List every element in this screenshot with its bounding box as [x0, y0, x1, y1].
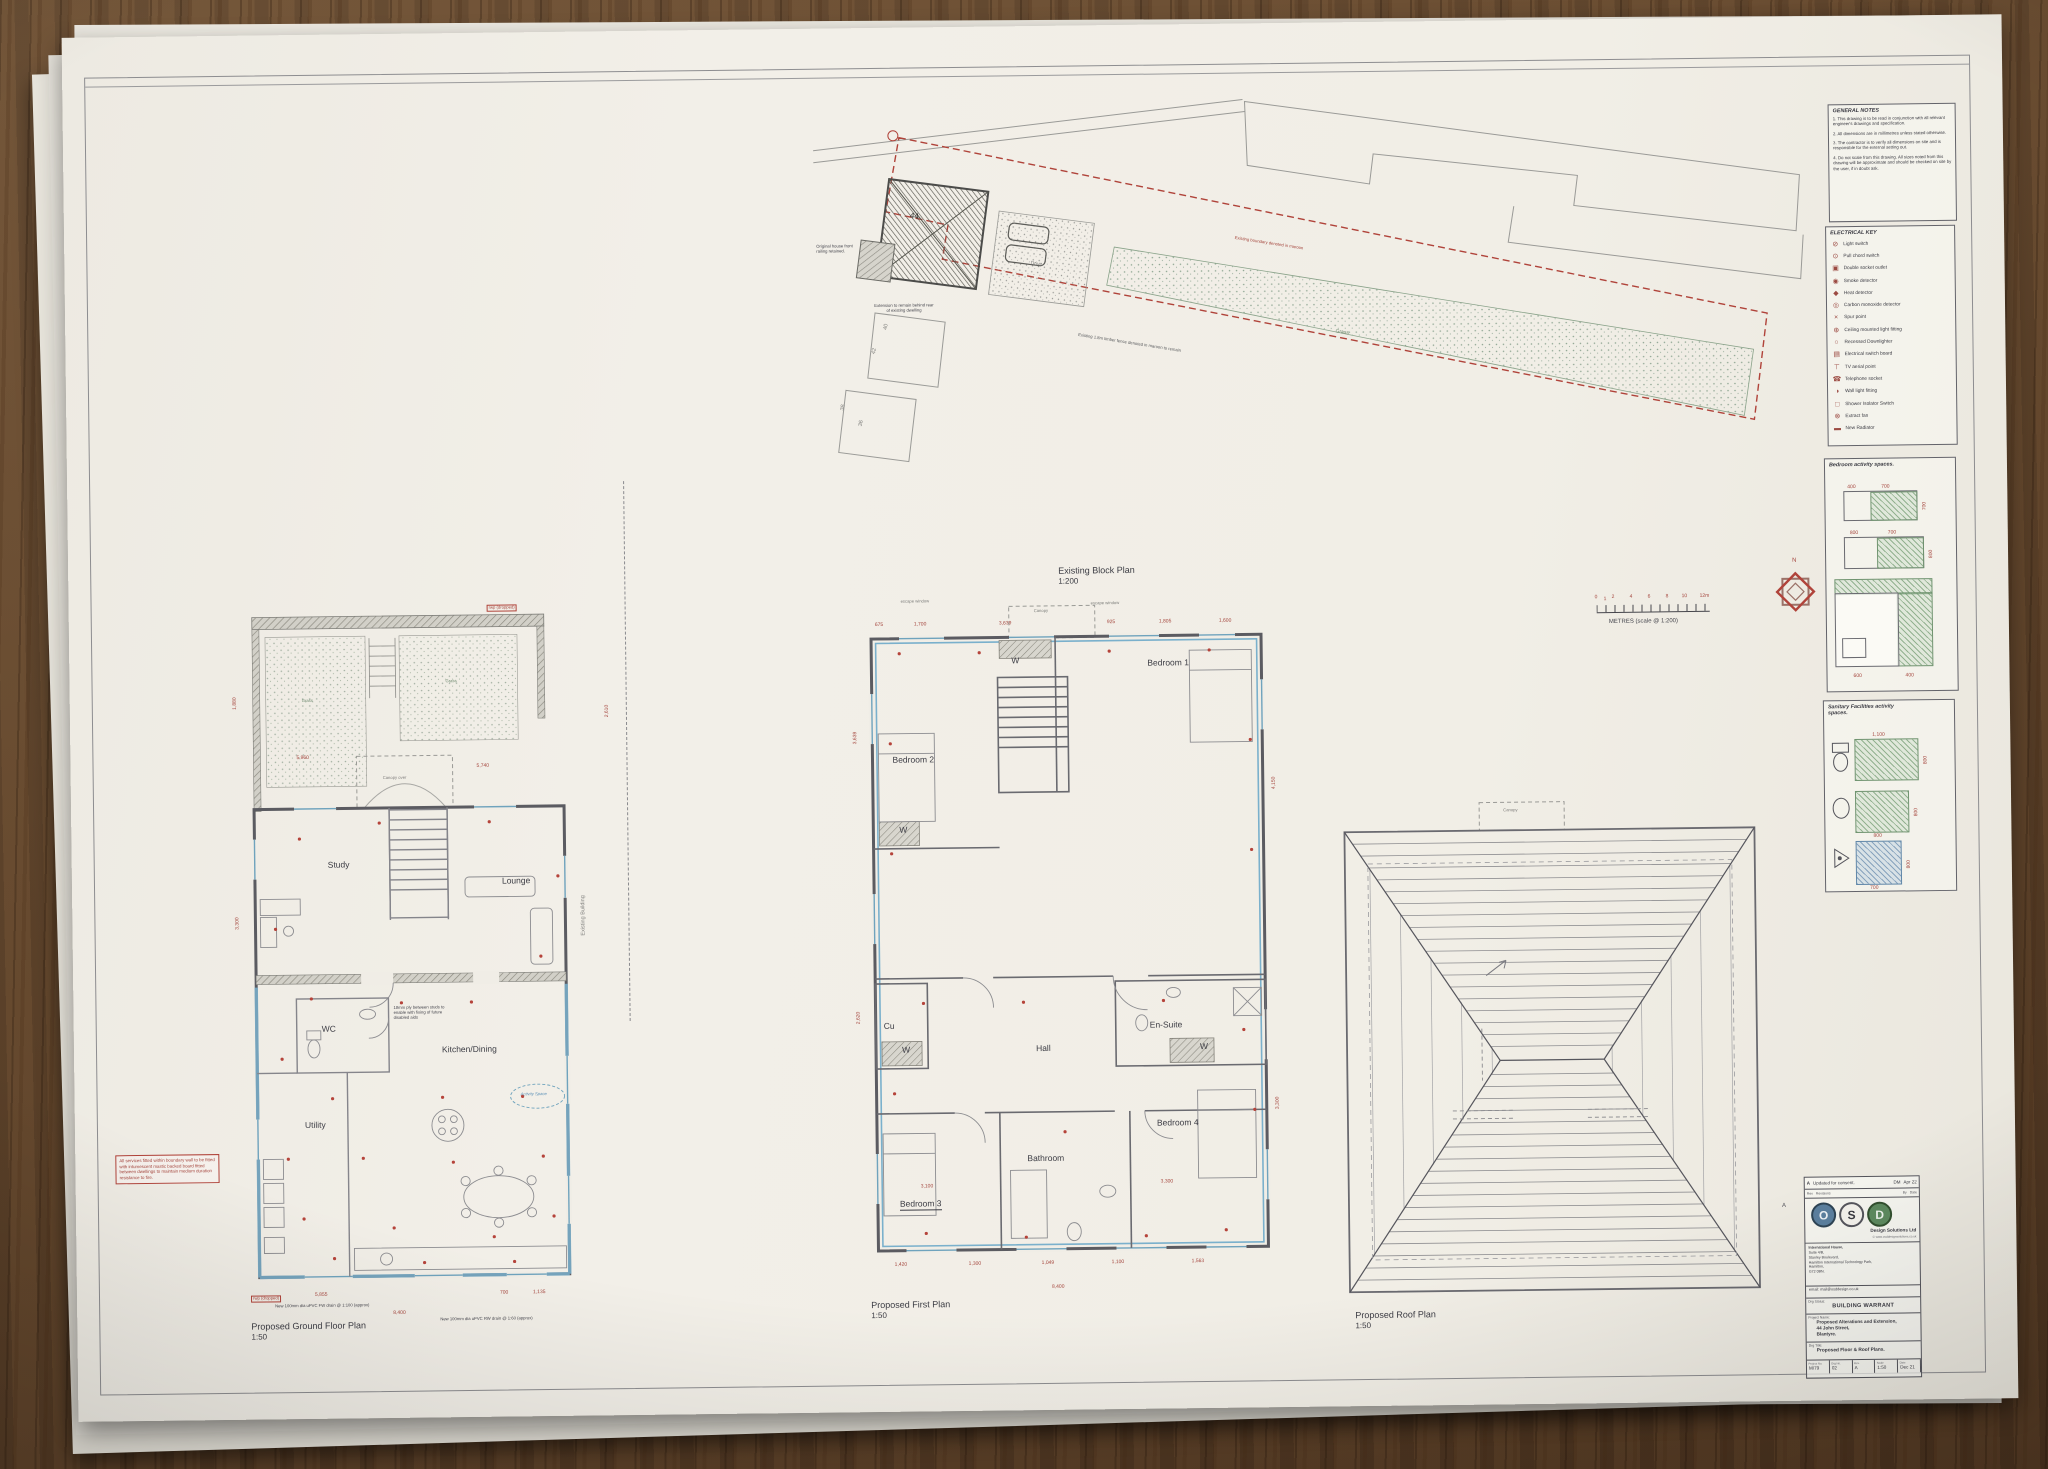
plot-number: 42 — [871, 348, 878, 355]
first-floor-dimensions: 6751,7003,6399251,8051,6003,6392,6204,15… — [858, 589, 1297, 1319]
company-name: Design Solutions Ltd — [1870, 1227, 1916, 1233]
smoke-icon: ◉ — [1832, 277, 1840, 285]
electrical-key-label: Smoke detector — [1844, 278, 1878, 283]
bed-activity-diagram — [1834, 578, 1935, 671]
dimension-label: 2,620 — [856, 1012, 862, 1025]
first-floor-title: Proposed First Plan 1:50 — [871, 1299, 950, 1321]
ceiling-light-icon: ⊕ — [1832, 326, 1840, 334]
roof-plan: Canopy Proposed Roof Plan 1:50 — [1329, 777, 1776, 1347]
title-block-field: Drg No. 02 — [1830, 1360, 1853, 1373]
dimension-label: 1,100 — [1112, 1259, 1125, 1265]
electrical-key-label: Ceiling mounted light fitting — [1844, 327, 1902, 333]
dimension-label: 700 — [1881, 484, 1889, 490]
dimension-label: 1,049 — [1042, 1260, 1055, 1266]
plot-number: 38 — [840, 404, 847, 411]
revision-letter: A — [1807, 1181, 1810, 1186]
dimension-label: 925 — [1107, 619, 1115, 625]
services-red-note: All services fitted within boundary wall… — [115, 1154, 219, 1184]
dimension-label: 5,960 — [296, 755, 309, 761]
extension-note: Extension to remain behind rear of exist… — [873, 303, 935, 313]
project-line: Blantyre. — [1817, 1331, 1921, 1338]
dimension-label: 800 — [1913, 808, 1919, 816]
logo-circle-o: O — [1811, 1202, 1836, 1227]
general-note: 2. All dimensions are in millimetres unl… — [1833, 130, 1951, 137]
dimension-label: 700 — [1870, 885, 1878, 891]
general-notes-panel: GENERAL NOTES 1. This drawing is to be r… — [1828, 103, 1957, 223]
dimension-label: 800 — [1906, 860, 1912, 868]
dimension-label: 8 — [1666, 593, 1669, 599]
drg-title-row: Drg Title: Proposed Floor & Roof Plans. — [1807, 1341, 1921, 1360]
electrical-key-panel: ELECTRICAL KEY ⊘ Light switch ⊙ Pull cho… — [1825, 225, 1958, 447]
address-line: G72 0BN. — [1809, 1269, 1917, 1275]
status-row: Drg Status: BUILDING WARRANT — [1806, 1297, 1920, 1314]
dimension-label: 700 — [1921, 502, 1927, 510]
electrical-key-list: ⊘ Light switch ⊙ Pull chord switch ▣ Dou… — [1826, 237, 1956, 435]
dimension-label: 1,100 — [1872, 732, 1885, 738]
general-notes-list: 1. This drawing is to be read in conjunc… — [1829, 115, 1956, 171]
title-block-field: Rev. A — [1852, 1360, 1875, 1373]
wc-icon — [1830, 741, 1850, 773]
by-header: By — [1903, 1190, 1907, 1194]
dimension-label: 800 — [1928, 550, 1934, 558]
phone-icon: ☎ — [1833, 376, 1841, 384]
first-floor-plan: escape window escape window Canopy Bedro… — [858, 589, 1297, 1319]
drg-title-label: Drg Title: — [1809, 1343, 1823, 1347]
bedroom-activity-panel: Bedroom activity spaces. 400 700 700 800… — [1824, 457, 1959, 693]
dimension-label: 800 — [1850, 530, 1858, 536]
logo-circle-d: D — [1867, 1202, 1892, 1227]
dimension-label: 400 — [1847, 484, 1855, 490]
wc-activity-zone — [1854, 738, 1919, 781]
dimension-label: 1,880 — [232, 697, 238, 710]
block-plan-drawing — [812, 87, 1808, 604]
dimension-label: 2 — [1612, 594, 1615, 600]
plot-number-44: 44 — [909, 211, 919, 221]
activity-zone — [1897, 592, 1934, 666]
dimension-label: 1,300 — [969, 1261, 982, 1267]
general-note: 1. This drawing is to be read in conjunc… — [1833, 115, 1951, 127]
roof-plan-title: Proposed Roof Plan 1:50 — [1355, 1309, 1436, 1331]
dimension-label: 10 — [1682, 593, 1688, 599]
drg-title-value: Proposed Floor & Roof Plans. — [1817, 1347, 1921, 1353]
activity-zone — [1877, 537, 1924, 569]
compass-star-icon — [1768, 564, 1823, 619]
block-plan-title: Existing Block Plan 1:200 — [1058, 565, 1135, 587]
shower-activity-zone — [1856, 840, 1903, 885]
dimension-label: 3,300 — [1161, 1178, 1174, 1184]
dimension-label: 675 — [875, 622, 883, 628]
plot-number: 40 — [883, 323, 890, 330]
dimension-label: 1,420 — [895, 1262, 908, 1268]
pillow — [1842, 638, 1866, 658]
shower-icon — [1832, 845, 1852, 871]
basin-activity-zone — [1855, 790, 1910, 833]
title-block-field: Date Dec 21 — [1898, 1359, 1921, 1372]
company-url: © www.osddesignsolutions.co.uk — [1873, 1234, 1917, 1239]
scale-bar-caption: METRES (scale @ 1:200) — [1609, 618, 1678, 626]
dimension-label: 1,135 — [533, 1289, 546, 1295]
general-notes-title: GENERAL NOTES — [1833, 107, 1951, 114]
project-label: Project Name: — [1808, 1315, 1830, 1319]
co-icon: ◎ — [1832, 302, 1840, 310]
railing-note: Original house front railing retained. — [816, 244, 860, 254]
electrical-key-label: Shower Isolator Switch — [1845, 401, 1894, 407]
canopy-label: Canopy — [1503, 808, 1517, 813]
fan-icon: ⊗ — [1833, 412, 1841, 420]
tv-icon: ⊤ — [1833, 363, 1841, 371]
electrical-key-label: New Radiator — [1845, 426, 1874, 431]
dimension-label: 4,150 — [1271, 777, 1277, 790]
dimension-label: 3,639 — [852, 732, 858, 745]
drawing-sheet: 44 Drive Grass Existing boundary denoted… — [62, 14, 2019, 1422]
project-row: Project Name: Proposed Alterations and E… — [1806, 1313, 1920, 1342]
dimension-label: 3,100 — [921, 1183, 934, 1189]
dimension-label: 800 — [1923, 756, 1929, 764]
revision-by: DM — [1893, 1180, 1900, 1185]
dimension-label: 400 — [1906, 672, 1914, 678]
basin-icon — [1831, 795, 1851, 821]
switch-icon: ⊘ — [1831, 240, 1839, 248]
plot-number: 36 — [858, 420, 865, 427]
electrical-key-label: Heat detector — [1844, 291, 1873, 296]
logo-circle-s: S — [1839, 1202, 1864, 1227]
pull-chord-icon: ⊙ — [1831, 253, 1839, 261]
bed-outline — [1835, 593, 1900, 668]
electrical-key-label: Telephone socket — [1845, 377, 1882, 382]
dimension-label: 5,855 — [315, 1292, 328, 1298]
roof-plan-drawing — [1329, 777, 1776, 1347]
dimension-label: 3,300 — [234, 917, 240, 930]
ground-dimensions: 5,9605,7401,8803,3002,6108,4005,8557001,… — [235, 454, 696, 1359]
electrical-key-label: Recessed Downlighter — [1844, 340, 1892, 346]
electrical-key-label: Wall light fitting — [1845, 389, 1877, 394]
logo-row: O S D Design Solutions Ltd © www.osddesi… — [1805, 1197, 1920, 1243]
existing-block-plan: 44 Drive Grass Existing boundary denoted… — [812, 87, 1808, 604]
radiator-icon: ▬ — [1833, 425, 1841, 433]
dimension-label: 5,740 — [477, 763, 490, 769]
dimension-label: 700 — [500, 1290, 508, 1296]
dimension-label: 700 — [1888, 530, 1896, 536]
electrical-key-label: Carbon monoxide detector — [1844, 303, 1901, 309]
electrical-key-title: ELECTRICAL KEY — [1830, 229, 1950, 236]
revision-marker: A — [1782, 1203, 1786, 1210]
status-label: Drg Status: — [1808, 1299, 1825, 1303]
revision-desc: Updated for consent. — [1813, 1180, 1855, 1186]
activity-zone — [1870, 491, 1917, 521]
wall-light-icon: ◑ — [1833, 388, 1841, 396]
dimension-label: 8,400 — [393, 1310, 406, 1316]
dimension-label: 800 — [1873, 833, 1881, 839]
scale-bar-group: 0124681012m METRES (scale @ 1:200) — [1596, 589, 1797, 646]
north-label: N — [1792, 558, 1796, 565]
revision-date: Apr 22 — [1903, 1179, 1916, 1184]
shower-switch-icon: □ — [1833, 400, 1841, 408]
dimension-label: 600 — [1854, 673, 1862, 679]
board-icon: ▤ — [1833, 351, 1841, 359]
dimension-label: 8,400 — [1052, 1284, 1065, 1290]
bedroom-space-diagram — [1844, 536, 1924, 569]
general-note: 4. Do not scale from this drawing. All s… — [1833, 154, 1951, 172]
dimension-label: 6 — [1648, 594, 1651, 600]
electrical-key-label: Electrical switch board — [1845, 352, 1893, 358]
heat-icon: ◆ — [1832, 290, 1840, 298]
electrical-key-row: ▬ New Radiator — [1828, 421, 1956, 435]
dimension-label: 1,600 — [1219, 618, 1232, 624]
address-block: International House, Suite 4/B, Stanley … — [1805, 1242, 1920, 1286]
electrical-key-label: Pull chord switch — [1843, 254, 1879, 259]
dimension-label: 1,805 — [1159, 618, 1172, 624]
bedroom-space-diagram — [1843, 490, 1917, 521]
dimension-label: 1,563 — [1192, 1258, 1205, 1264]
dimension-label: 0 — [1595, 594, 1598, 600]
dimension-label: 3,300 — [1275, 1097, 1281, 1110]
title-block-field: Scale 1:50 — [1875, 1360, 1898, 1373]
fields-row: Project No. M/79 Drg No. 02 Rev. A Scale… — [1807, 1359, 1921, 1373]
electrical-key-label: Double socket outlet — [1844, 266, 1888, 272]
dimension-label: 2,610 — [604, 705, 610, 718]
bedroom-activity-title: Bedroom activity spaces. — [1829, 461, 1899, 468]
north-arrow: N — [1768, 564, 1829, 631]
revisions-header: Revisions — [1816, 1191, 1831, 1195]
electrical-key-label: Light switch — [1843, 241, 1868, 246]
ground-floor-title: Proposed Ground Floor Plan 1:50 — [251, 1320, 366, 1343]
dimension-label: 3,639 — [999, 620, 1012, 626]
dimension-label: 1,700 — [914, 621, 927, 627]
sanitary-title: Sanitary Facilities activity spaces. — [1828, 703, 1908, 716]
ground-floor-plan: Grass Grass Canopy over Study Lounge WC … — [235, 454, 696, 1359]
electrical-key-label: Extract fan — [1845, 414, 1868, 419]
downlight-icon: ○ — [1832, 339, 1840, 347]
title-block-field: Project No. M/79 — [1807, 1360, 1830, 1373]
dimension-label: 1 — [1604, 596, 1607, 602]
scale-bar: 0124681012m — [1597, 604, 1710, 613]
general-note: 3. The contractor is to verify all dimen… — [1833, 139, 1951, 151]
electrical-key-label: TV aerial point — [1845, 364, 1876, 369]
date-header: Date — [1910, 1190, 1917, 1194]
electrical-key-label: Spur point — [1844, 315, 1866, 320]
sanitary-facilities-panel: Sanitary Facilities activity spaces. 1,1… — [1823, 699, 1957, 893]
dimension-label: 4 — [1630, 594, 1633, 600]
dimension-label: 12m — [1700, 593, 1710, 599]
socket-icon: ▣ — [1832, 265, 1840, 273]
rev-header: Rev — [1807, 1192, 1813, 1196]
spur-icon: × — [1832, 314, 1840, 322]
title-block: A Updated for consent. DM Apr 22 Rev Rev… — [1804, 1175, 1922, 1378]
